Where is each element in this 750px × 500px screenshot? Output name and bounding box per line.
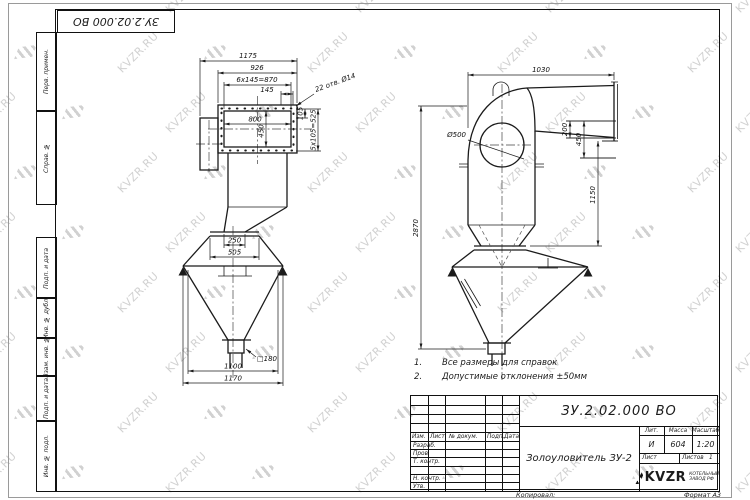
dim-525: 5x105=525 [310,109,318,151]
note-2-text: Допустимые отклонения ±50мм [442,370,587,384]
dim-145: 145 [260,86,274,94]
dim-200: 200 [561,122,569,136]
dim-1175: 1175 [239,52,257,60]
note-1-text: Все размеры для справок [442,356,557,370]
dim-450-front: 450 [258,124,266,138]
scale-value: 1:20 [692,435,719,453]
scale-label: Масштаб [692,426,719,435]
logo-sub-line2: ЗАВОД РФ [689,477,714,482]
dim-dia500: Ø500 [446,131,466,139]
dim-870: 6x145=870 [236,76,278,84]
dim-800: 800 [248,116,262,124]
mass-label: Масса [664,426,692,435]
row-prov: Пров. [413,451,430,457]
row-nkontr: Н. контр. [413,476,441,482]
dim-926: 926 [250,64,264,72]
product-name: Золоуловитель ЗУ-2 [526,453,632,464]
sheets-label: Листов [682,455,704,461]
lit-value: И [639,435,664,453]
dim-250: 250 [228,237,242,245]
logo-brand-text: KVZR [645,470,687,485]
row-utv: Утв. [413,484,425,490]
col-data: Дата [504,434,519,440]
logo-subtitle: КОТЕЛЬНЫЙ ЗАВОД РФ [689,472,719,482]
format-label: Формат А3 [684,491,721,499]
col-izm: Изм. [412,434,426,440]
col-podp: Подп. [487,434,505,440]
title-block: Изм. Лист № докум. Подп. Дата Разраб. Пр… [410,395,718,490]
side-view: 1030 Ø500 200 450 1150 2870 [412,66,618,380]
dim-1100: 1100 [224,363,242,371]
dim-holes: 22 отв. Ø14 [314,72,357,94]
sheet-label: Лист [642,455,657,461]
note-2: 2. Допустимые отклонения ±50мм [414,370,587,384]
dim-105: 105 [297,106,305,120]
dim-1150: 1150 [589,186,597,204]
dim-1030: 1030 [532,66,550,74]
note-2-number: 2. [414,370,442,384]
col-doc: № докум. [449,434,478,440]
dim-2870: 2870 [412,219,420,237]
dim-450-side: 450 [575,132,583,146]
dim-505: 505 [228,249,242,257]
dim-180: □180 [257,355,278,363]
lit-label: Лит. [639,426,664,435]
row-tkontr: Т. контр. [413,459,440,465]
drawing-sheet: KVZR.RUKVZR.RUKVZR.RUKVZR.RUKVZR.RUKVZR.… [0,0,750,500]
copied-label: Копировал: [516,491,555,499]
row-razrab: Разраб. [413,443,436,449]
note-1: 1. Все размеры для справок [414,356,587,370]
dim-1170: 1170 [224,375,242,383]
col-list: Лист [430,434,445,440]
mass-value: 604 [664,435,692,453]
company-logo: KVZR КОТЕЛЬНЫЙ ЗАВОД РФ [639,463,719,491]
title-doc-number: ЗУ.2.02.000 ВО [561,404,677,419]
sheets-value: 1 [709,455,713,461]
notes: 1. Все размеры для справок 2. Допустимые… [414,356,587,384]
front-view: 1175 926 6x145=870 145 22 отв. Ø14 105 5… [179,52,357,386]
note-1-number: 1. [414,356,442,370]
